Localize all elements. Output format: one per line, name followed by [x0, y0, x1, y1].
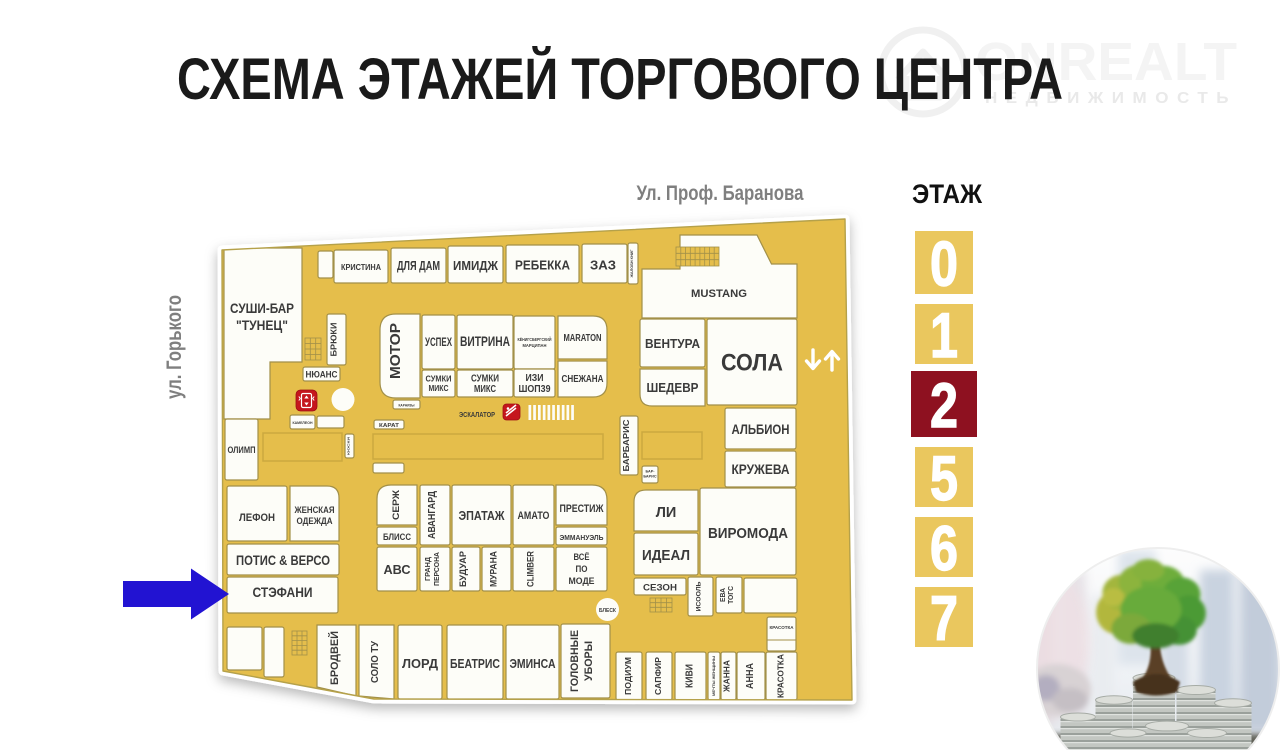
svg-text:5: 5 [930, 444, 958, 514]
svg-text:МЕЧТЫ ЖЕНЩИНЫ: МЕЧТЫ ЖЕНЩИНЫ [711, 656, 716, 696]
svg-text:ПРЕСТИЖ: ПРЕСТИЖ [560, 503, 604, 515]
svg-text:"ТУНЕЦ": "ТУНЕЦ" [236, 318, 288, 333]
svg-text:ИМИДЖ: ИМИДЖ [453, 258, 498, 273]
svg-text:СОЛА: СОЛА [721, 350, 783, 377]
svg-text:ВСЁ: ВСЁ [574, 552, 590, 562]
svg-text:СХЕМА ЭТАЖЕЙ ТОРГОВОГО ЦЕНТРА: СХЕМА ЭТАЖЕЙ ТОРГОВОГО ЦЕНТРА [177, 47, 1063, 112]
svg-text:МИКС: МИКС [429, 384, 449, 393]
svg-text:0: 0 [930, 230, 958, 300]
svg-text:АМАТО: АМАТО [518, 510, 550, 522]
svg-text:ЭСКАЛАТОР: ЭСКАЛАТОР [459, 412, 495, 419]
svg-text:УБОРЫ: УБОРЫ [583, 641, 595, 681]
svg-text:СЕРЖ: СЕРЖ [391, 489, 401, 520]
svg-text:СЕЗОН: СЕЗОН [643, 583, 677, 594]
svg-text:MUSTANG: MUSTANG [691, 288, 747, 300]
svg-text:ЖАННА: ЖАННА [723, 660, 732, 693]
svg-text:MARATON: MARATON [564, 332, 602, 344]
svg-text:АЛЬБИОН: АЛЬБИОН [732, 422, 790, 437]
svg-text:МИКС: МИКС [474, 384, 496, 395]
svg-text:МОДЕ: МОДЕ [569, 576, 595, 586]
svg-text:ЕВА: ЕВА [720, 588, 727, 602]
svg-text:СУШИ-БАР: СУШИ-БАР [230, 301, 294, 316]
svg-text:ЛИ: ЛИ [656, 505, 677, 521]
svg-text:ДЛЯ ДАМ: ДЛЯ ДАМ [397, 259, 440, 273]
svg-text:ШОП39: ШОП39 [519, 384, 551, 395]
svg-text:МОТОР: МОТОР [387, 323, 404, 379]
svg-text:ИЗИ: ИЗИ [526, 373, 544, 384]
svg-text:ПОДИУМ: ПОДИУМ [623, 657, 633, 695]
svg-text:КРУЖЕВА: КРУЖЕВА [732, 462, 790, 477]
svg-text:СУМКИ: СУМКИ [426, 375, 452, 384]
svg-text:КРАСОТКА: КРАСОТКА [776, 654, 786, 698]
svg-text:БЛЕСК: БЛЕСК [599, 608, 617, 614]
svg-text:ВЕНТУРА: ВЕНТУРА [645, 336, 701, 351]
svg-text:ЭМИНСА: ЭМИНСА [510, 656, 556, 671]
svg-text:БАРБАРИС: БАРБАРИС [621, 420, 631, 472]
svg-text:НЮАНС: НЮАНС [306, 370, 338, 381]
svg-text:ШЕДЕВР: ШЕДЕВР [647, 381, 699, 395]
svg-text:СТЭФАНИ: СТЭФАНИ [253, 585, 313, 600]
svg-text:БЛИСС: БЛИСС [383, 532, 411, 542]
svg-text:ЛЕФОН: ЛЕФОН [239, 512, 275, 524]
svg-text:КИВИ: КИВИ [685, 664, 696, 688]
svg-text:ул. Горького: ул. Горького [163, 295, 186, 399]
svg-text:ИДЕАЛ: ИДЕАЛ [642, 548, 690, 564]
svg-text:РЕБЕККА: РЕБЕККА [515, 258, 571, 273]
svg-text:АВАНГАРД: АВАНГАРД [427, 491, 438, 539]
svg-text:7: 7 [930, 584, 958, 654]
svg-text:ТОГС: ТОГС [728, 586, 735, 604]
svg-text:АВС: АВС [384, 562, 412, 577]
svg-text:ГОЛОВНЫЕ: ГОЛОВНЫЕ [569, 630, 581, 692]
svg-text:ЗАЗ: ЗАЗ [590, 258, 616, 273]
svg-text:КЮСКИ: КЮСКИ [347, 437, 351, 455]
svg-text:КАМЕЛЕОН: КАМЕЛЕОН [293, 420, 313, 425]
svg-text:2: 2 [930, 371, 958, 441]
svg-text:ИСООЛЬ: ИСООЛЬ [696, 581, 703, 611]
svg-text:БУДУАР: БУДУАР [458, 551, 468, 587]
svg-text:ГРАНД: ГРАНД [425, 557, 432, 581]
svg-text:БАРИС: БАРИС [643, 475, 657, 479]
svg-text:БРЮКИ: БРЮКИ [330, 322, 339, 356]
svg-text:ЭТАЖ: ЭТАЖ [912, 179, 983, 209]
svg-text:КРАСОТКА: КРАСОТКА [770, 625, 794, 630]
svg-text:ЭПАТАЖ: ЭПАТАЖ [459, 508, 505, 523]
svg-text:САПФИР: САПФИР [653, 657, 663, 695]
svg-text:ПЕРСОНА: ПЕРСОНА [434, 552, 441, 586]
svg-text:КЁНИГСБЕРГСКИЙ: КЁНИГСБЕРГСКИЙ [518, 335, 552, 342]
svg-text:ЖАЛОБН КНИГ: ЖАЛОБН КНИГ [630, 249, 634, 278]
svg-text:6: 6 [930, 514, 958, 584]
svg-text:ЛОРД: ЛОРД [402, 656, 439, 671]
svg-text:ОЛИМП: ОЛИМП [228, 445, 256, 455]
svg-text:CLIMBER: CLIMBER [526, 551, 536, 587]
svg-text:ЭММАНУЭЛЬ: ЭММАНУЭЛЬ [560, 535, 604, 542]
svg-text:1: 1 [930, 301, 958, 371]
svg-text:МУРАНА: МУРАНА [489, 551, 499, 587]
svg-text:АННА: АННА [745, 663, 756, 689]
svg-text:ВИТРИНА: ВИТРИНА [460, 333, 510, 349]
svg-text:ВИРОМОДА: ВИРОМОДА [708, 526, 788, 542]
svg-text:СНЕЖАНА: СНЕЖАНА [562, 373, 604, 385]
svg-text:МАРЦИПАН: МАРЦИПАН [523, 343, 547, 348]
svg-text:СУМКИ: СУМКИ [471, 374, 499, 385]
svg-text:СОЛО ТУ: СОЛО ТУ [370, 640, 381, 683]
svg-text:БЕАТРИС: БЕАТРИС [450, 656, 500, 671]
svg-text:КАРАТ: КАРАТ [379, 423, 400, 429]
svg-text:ОДЕЖДА: ОДЕЖДА [297, 516, 333, 526]
svg-text:УСПЕХ: УСПЕХ [425, 337, 452, 349]
svg-text:КРИСТИНА: КРИСТИНА [341, 263, 381, 272]
svg-text:БАР-: БАР- [645, 470, 655, 474]
svg-text:ПО: ПО [576, 564, 588, 574]
svg-text:ПОТИС & ВЕРСО: ПОТИС & ВЕРСО [236, 553, 330, 568]
svg-text:ЖЕНСКАЯ: ЖЕНСКАЯ [294, 505, 335, 515]
svg-text:БРОДВЕЙ: БРОДВЕЙ [328, 631, 341, 685]
svg-text:Ул. Проф. Баранова: Ул. Проф. Баранова [637, 182, 804, 205]
svg-text:КАРНИЗЫ: КАРНИЗЫ [399, 403, 415, 408]
